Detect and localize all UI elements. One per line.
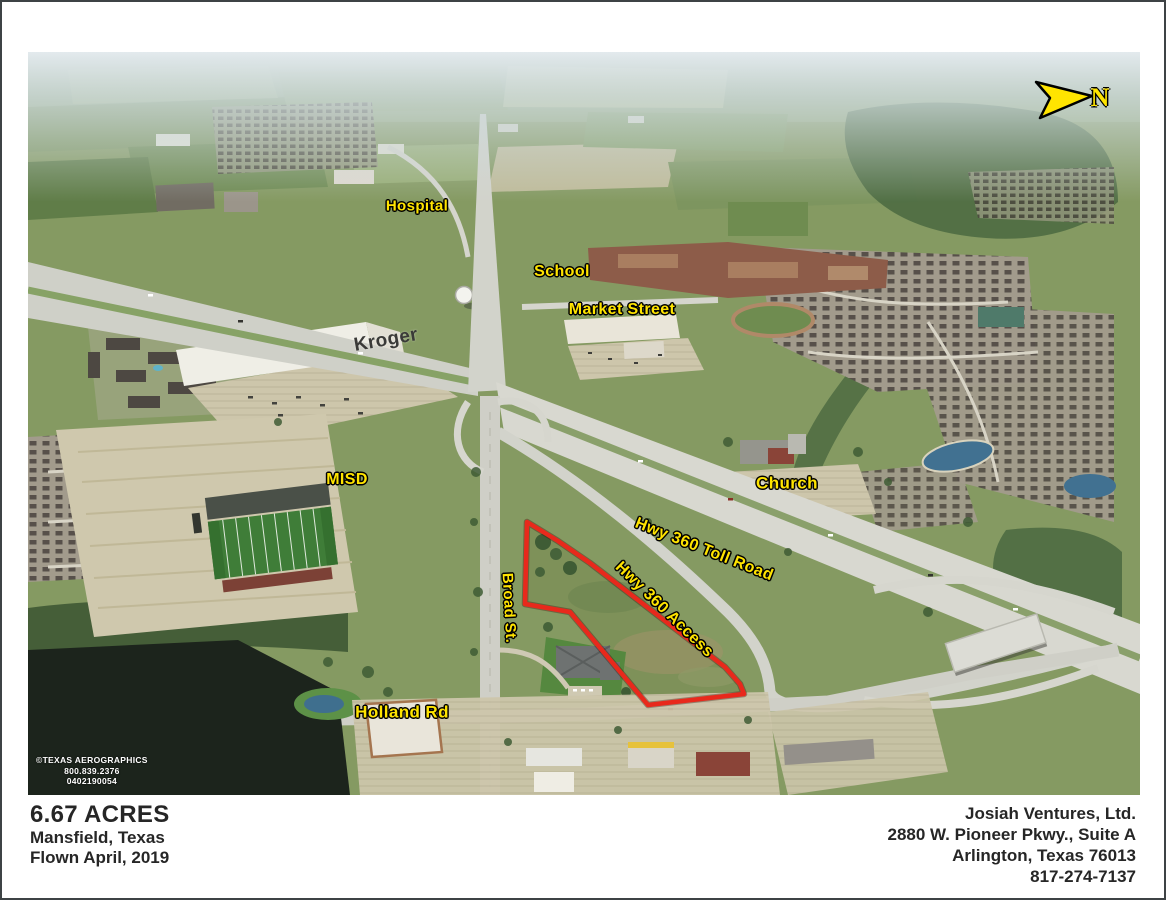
credit-phone: 800.839.2376 <box>36 766 148 777</box>
label-broad-st: Broad St. <box>500 573 519 644</box>
flown-date-text: Flown April, 2019 <box>30 848 170 868</box>
acreage-title: 6.67 ACRES <box>30 801 170 828</box>
label-hospital: Hospital <box>386 199 448 214</box>
company-name: Josiah Ventures, Ltd. <box>888 803 1136 824</box>
label-misd: MISD <box>326 472 368 488</box>
company-phone: 817-274-7137 <box>888 866 1136 887</box>
company-city: Arlington, Texas 76013 <box>888 845 1136 866</box>
aerial-photo-frame: Hospital School Market Street Kroger MIS… <box>28 52 1140 795</box>
credit-job-number: 0402190054 <box>36 776 148 787</box>
north-label: N <box>1091 85 1110 111</box>
credit-name: ©TEXAS AEROGRAPHICS <box>36 755 148 766</box>
aerial-photo <box>28 52 1140 795</box>
flyer-page: Hospital School Market Street Kroger MIS… <box>0 0 1166 900</box>
label-holland-rd: Holland Rd <box>355 704 449 721</box>
label-church: Church <box>756 475 818 492</box>
location-text: Mansfield, Texas <box>30 828 170 848</box>
stadium-complex <box>56 414 358 637</box>
contact-block: Josiah Ventures, Ltd. 2880 W. Pioneer Pk… <box>888 803 1136 887</box>
label-market-street: Market Street <box>569 302 676 318</box>
company-address: 2880 W. Pioneer Pkwy., Suite A <box>888 824 1136 845</box>
photo-credit: ©TEXAS AEROGRAPHICS 800.839.2376 0402190… <box>36 755 148 787</box>
property-caption: 6.67 ACRES Mansfield, Texas Flown April,… <box>30 801 170 868</box>
horizon-haze <box>28 52 1140 202</box>
label-school: School <box>534 264 590 280</box>
